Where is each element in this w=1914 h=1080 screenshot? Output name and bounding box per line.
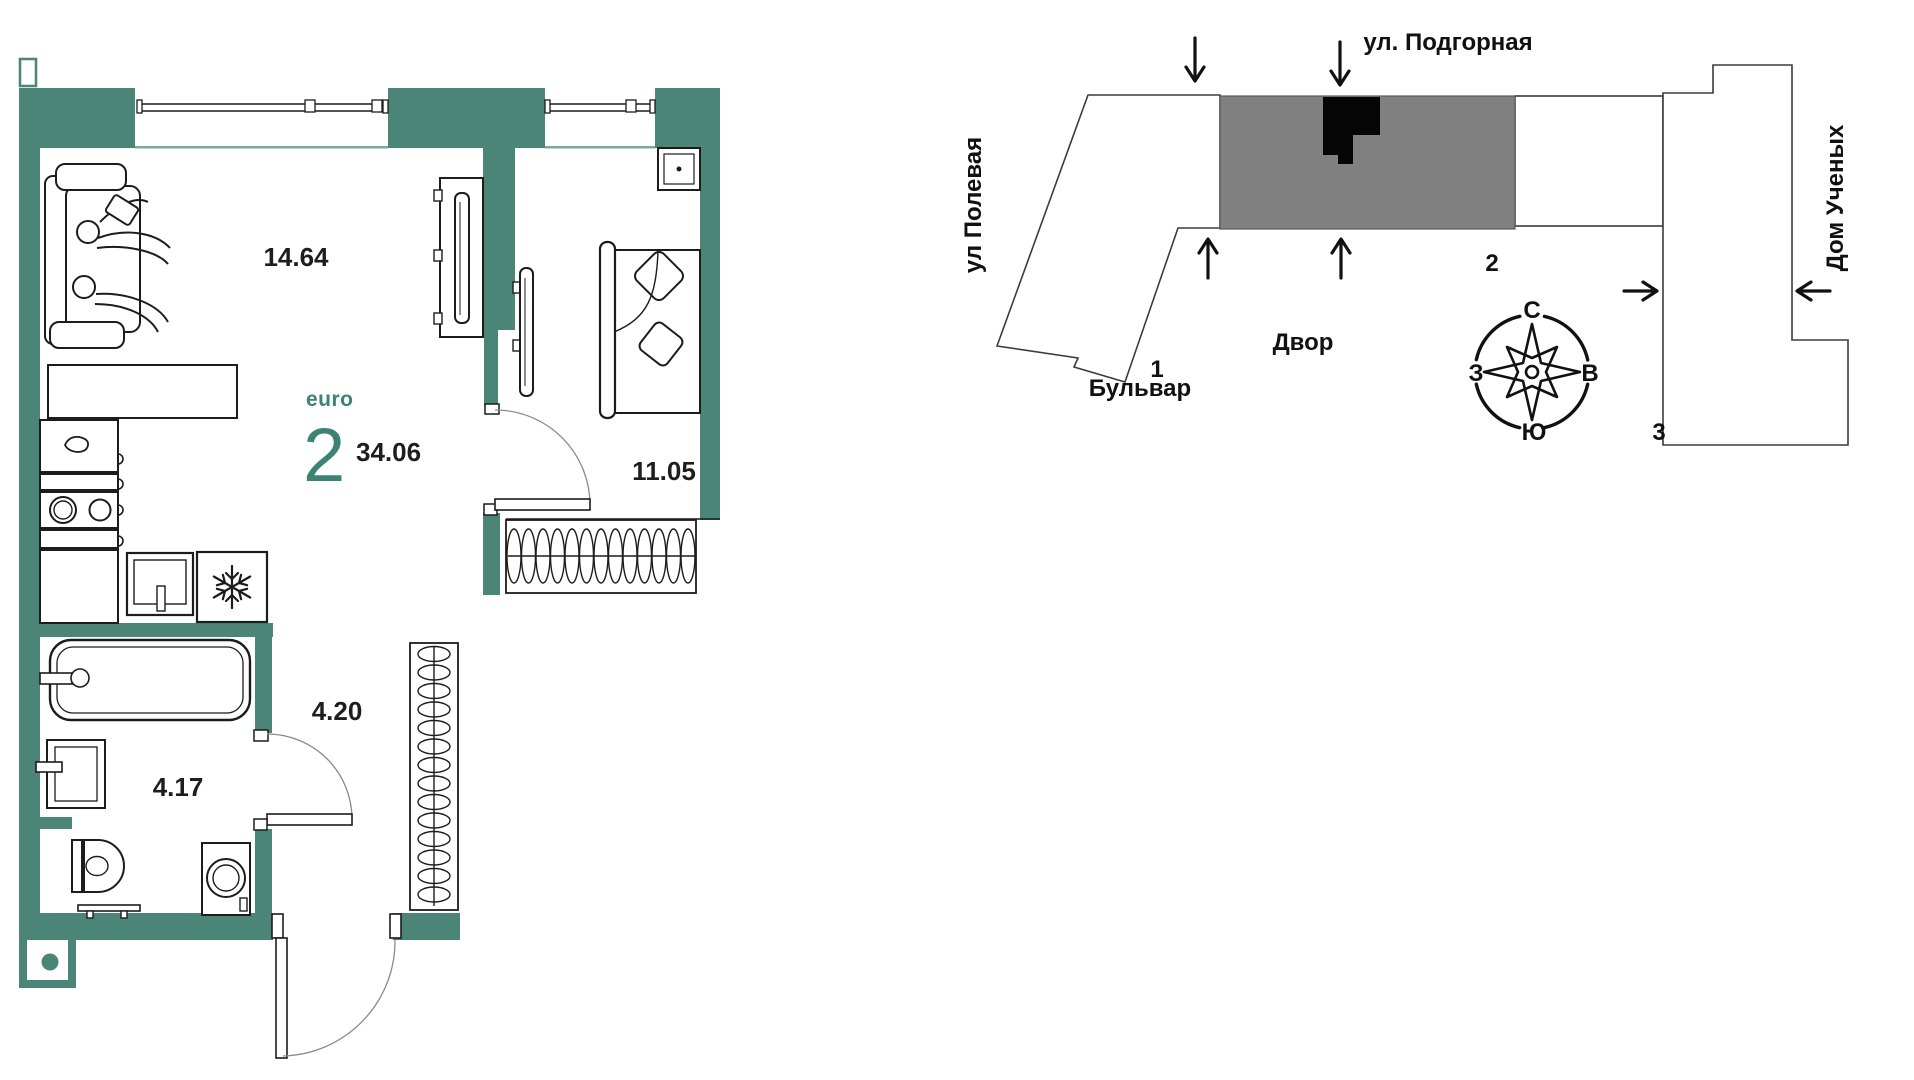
street-top-label: ул. Подгорная: [1363, 29, 1532, 56]
living-window-icon: [135, 100, 388, 149]
plan-drawing: 14.64 11.05 4.20 4.17 euro 2 34.06: [0, 0, 1914, 1080]
faucet-icon: [65, 437, 88, 452]
compass-rose-icon: С Ю З В: [1468, 297, 1598, 446]
building-2-number: 2: [1485, 250, 1498, 277]
fridge: [197, 552, 267, 622]
nightstand: [658, 148, 700, 190]
boulevard-label: Бульвар: [1089, 375, 1191, 402]
compass-west-label: З: [1468, 360, 1483, 387]
floorplan-page: 14.64 11.05 4.20 4.17 euro 2 34.06: [0, 0, 1914, 1080]
arrow-right-icon: [1624, 282, 1657, 300]
building-right-label: Дом Ученых: [1822, 124, 1849, 271]
arrow-up-icon: [1332, 239, 1350, 278]
wardrobe-hallway: [410, 643, 458, 910]
building-3-number: 3: [1652, 419, 1665, 446]
washbasin: [36, 740, 105, 808]
compass-south-label: Ю: [1522, 419, 1547, 446]
toilet: [72, 840, 124, 892]
porch-column: [42, 954, 59, 971]
compass-north-label: С: [1523, 297, 1540, 324]
arrow-down-icon: [1331, 42, 1349, 85]
living-room-area-label: 14.64: [263, 242, 329, 272]
arrow-down-icon: [1186, 38, 1204, 81]
washing-machine: [202, 843, 250, 915]
wall-notch: [20, 59, 36, 86]
apartment-type-label: euro: [306, 388, 354, 411]
kitchen-table: [48, 365, 237, 418]
street-left-label: ул Полевая: [960, 137, 987, 273]
compass-east-label: В: [1581, 360, 1598, 387]
bathroom-door: [254, 730, 352, 830]
bed: [600, 242, 700, 418]
tv-unit-bedroom: [513, 268, 533, 396]
kitchen: [40, 365, 267, 623]
total-area-label: 34.06: [356, 437, 421, 467]
hallway-area-label: 4.20: [312, 696, 363, 726]
bathroom-area-label: 4.17: [153, 772, 204, 802]
bedroom-window-icon: [545, 100, 655, 149]
arrow-left-icon: [1797, 282, 1830, 300]
floor-plan: 14.64 11.05 4.20 4.17 euro 2 34.06: [19, 59, 720, 1058]
building-1: [997, 95, 1220, 382]
site-plan: С Ю З В ул. Подгорная ул Полевая Дом Уче…: [960, 29, 1849, 446]
rooms-count-label: 2: [303, 413, 345, 498]
building-bar-outline: [1515, 96, 1663, 226]
bedroom-area-label: 11.05: [632, 456, 696, 486]
entrance-door: [272, 914, 401, 1058]
arrow-up-icon: [1199, 239, 1217, 278]
building-1-number: 1: [1150, 356, 1163, 383]
wardrobe-band-horizontal: [506, 519, 720, 593]
tv-unit-living: [434, 178, 483, 337]
sofa-with-people: [45, 164, 170, 348]
courtyard-label: Двор: [1273, 329, 1334, 356]
bathtub: [40, 640, 250, 720]
bedroom-door: [484, 404, 590, 515]
building-3: [1663, 65, 1848, 445]
